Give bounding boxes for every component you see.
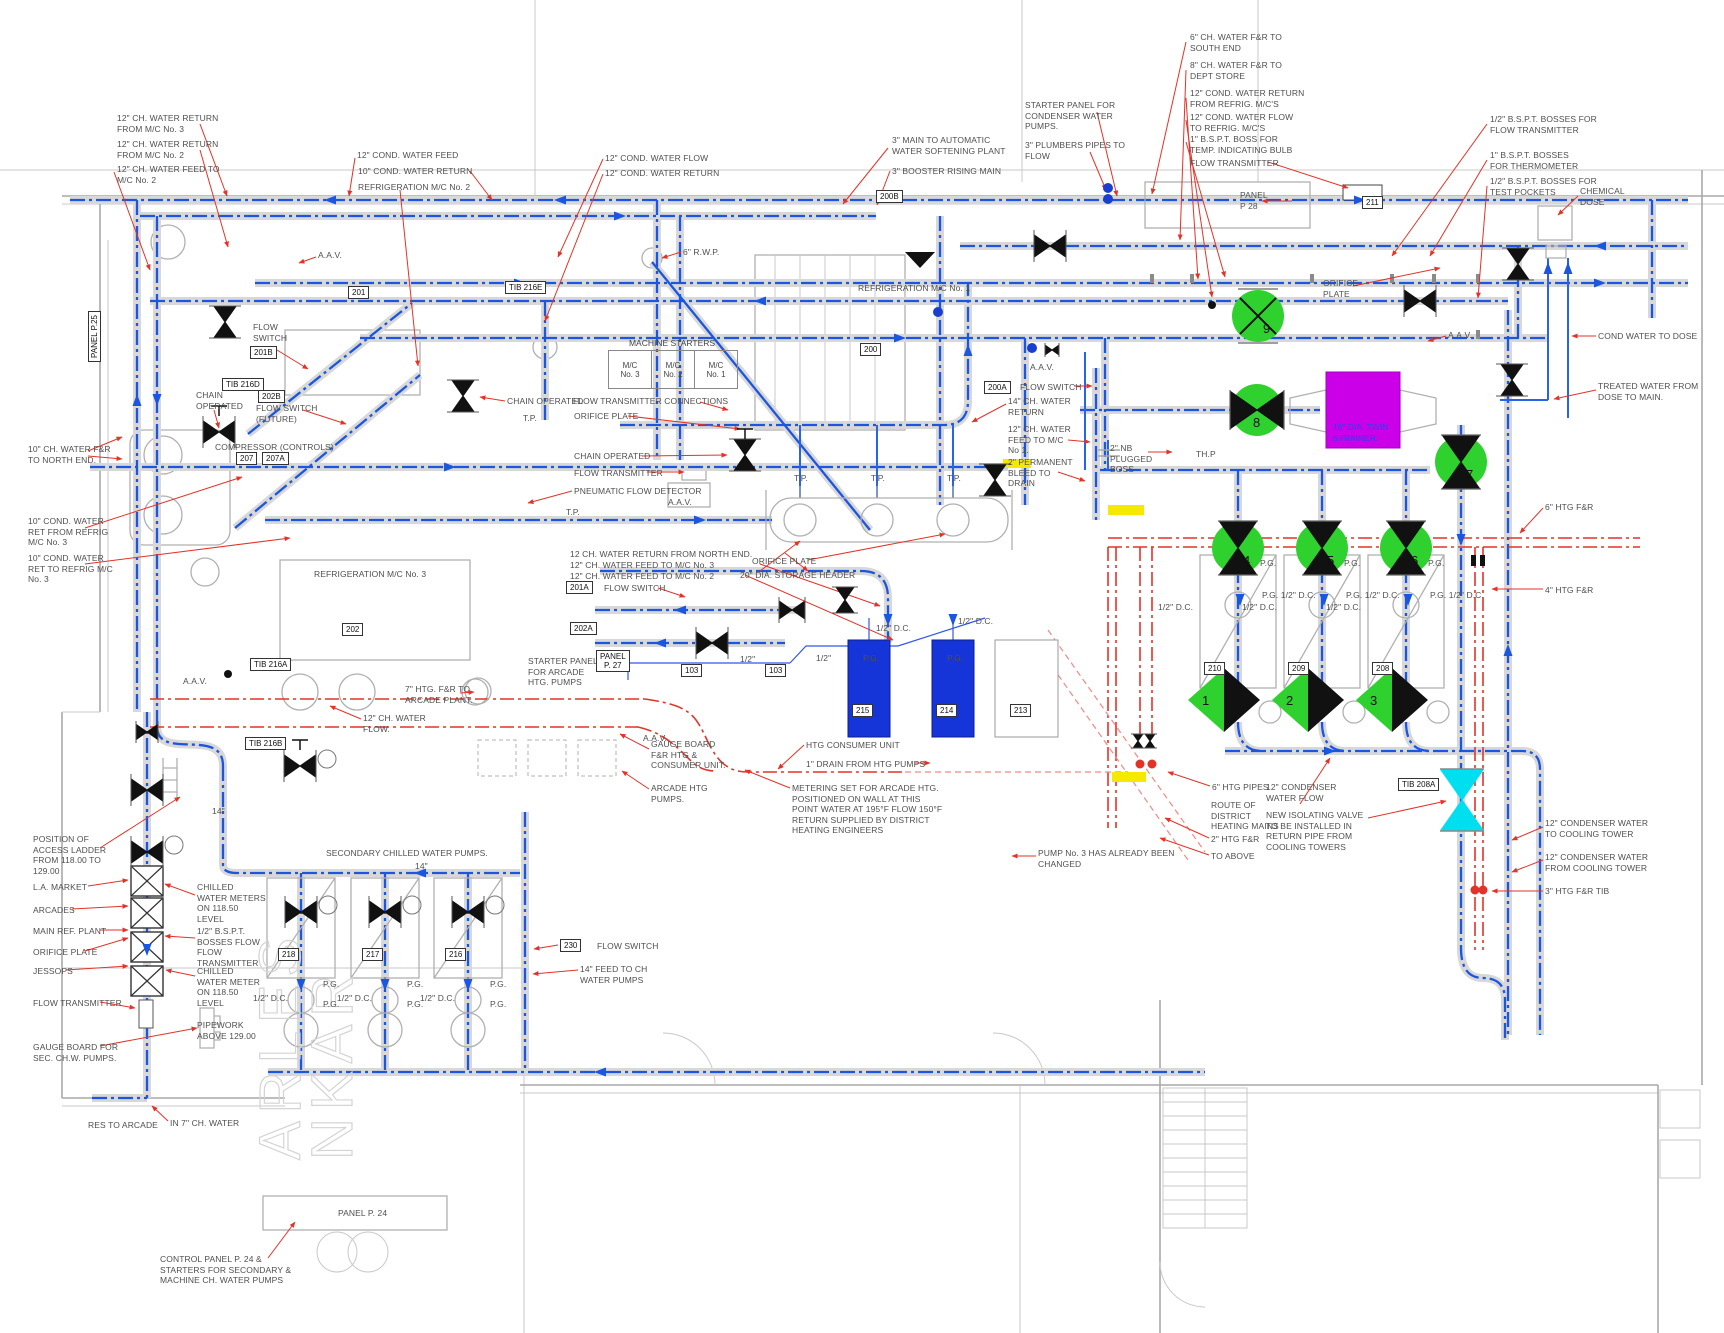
leader-north-end2 bbox=[88, 456, 122, 459]
tank-213 bbox=[995, 640, 1058, 737]
valve-black-12 bbox=[131, 836, 183, 868]
svg-text:9: 9 bbox=[1263, 321, 1270, 336]
flow-transmitter-box bbox=[1343, 185, 1382, 200]
leader-flow-tx-tr bbox=[1268, 162, 1348, 188]
leader-cond-ret-m3b bbox=[85, 538, 290, 564]
leader-cond-flow12b bbox=[1300, 758, 1330, 804]
leader-chain-op-2 bbox=[480, 397, 505, 401]
strainer-label-line1: 16" DIA. TWIN bbox=[1333, 422, 1388, 432]
district-heating-flanges bbox=[1471, 555, 1485, 566]
new-isolating-valve-cyan bbox=[1440, 769, 1484, 831]
machine-starters-table: M/C No. 3 M/C No. 2 M/C No. 1 bbox=[608, 350, 738, 389]
valve-black-6 bbox=[1034, 230, 1066, 262]
leader-chw-meters bbox=[165, 884, 195, 895]
valve-black-18 bbox=[1131, 734, 1145, 748]
marker-dot bbox=[1208, 301, 1216, 309]
leader-htg-consumer bbox=[778, 745, 804, 769]
leader-orifice-hdr bbox=[808, 534, 945, 560]
valve-black-21 bbox=[779, 597, 805, 623]
valve-black-19 bbox=[1143, 734, 1157, 748]
leader-treated bbox=[1554, 390, 1596, 399]
leader-flow-sw-201b bbox=[277, 350, 308, 369]
stairs bbox=[1163, 1088, 1247, 1228]
leader-cond-feed bbox=[349, 158, 355, 196]
leader-gauge-board bbox=[620, 734, 649, 749]
machine-starter-cell: M/C No. 3 bbox=[609, 351, 652, 388]
leader-ladder bbox=[100, 797, 180, 848]
valve-black-13 bbox=[284, 740, 336, 782]
marker-dot bbox=[1148, 760, 1157, 769]
leader-htg-2 bbox=[1165, 818, 1209, 838]
leader-flow-sw-fut bbox=[303, 410, 346, 424]
panel-p28-outline bbox=[1145, 182, 1310, 228]
plant-schematic-drawing: 16" DIA. TWIN STRAINER. AR bbox=[0, 0, 1724, 1333]
leader-control-p24 bbox=[268, 1222, 295, 1258]
marker-dot bbox=[1103, 194, 1113, 204]
valve-black-7 bbox=[1502, 248, 1534, 280]
marker-dot bbox=[933, 307, 943, 317]
leader-cond-ret-m3a bbox=[85, 477, 242, 528]
marker-dot bbox=[224, 670, 232, 678]
leader-cond-flow-refrig bbox=[1186, 120, 1212, 297]
strainer-label-line2: STRAINER. bbox=[1333, 433, 1378, 443]
leader-new-isolating bbox=[1368, 801, 1446, 818]
marker-dot bbox=[1027, 343, 1037, 353]
leader-aav-2 bbox=[299, 257, 316, 263]
leader-arcades bbox=[72, 906, 128, 909]
schematic-canvas: 16" DIA. TWIN STRAINER. AR bbox=[0, 0, 1724, 1333]
leader-in7 bbox=[152, 1106, 168, 1121]
leader-la-market bbox=[88, 880, 128, 886]
leader-chw-ret14 bbox=[972, 404, 1006, 422]
marker-dot bbox=[1136, 760, 1145, 769]
leader-dept-store bbox=[1180, 70, 1186, 240]
flow-arrow bbox=[949, 614, 958, 626]
leader-orifice-bl bbox=[85, 938, 128, 951]
storage-header bbox=[766, 486, 1012, 550]
flow-arrow bbox=[1564, 262, 1573, 274]
valve-green-5: 5 bbox=[1296, 521, 1348, 575]
valve-green-8: 8 bbox=[1230, 384, 1284, 436]
highlight-yellow-2 bbox=[1112, 772, 1146, 782]
valve-black-0 bbox=[209, 306, 241, 338]
leader-south-end bbox=[1152, 42, 1186, 194]
valve-black-15 bbox=[369, 896, 421, 928]
leader-cond-flow12 bbox=[558, 159, 603, 257]
leader-bspt-bulb bbox=[1186, 142, 1225, 277]
leader-plumbers bbox=[1090, 152, 1106, 190]
valve-green-6: 6 bbox=[1380, 521, 1432, 575]
tank-214 bbox=[932, 640, 974, 737]
valve-green-7: 7 bbox=[1435, 435, 1487, 489]
leader-feed-m1 bbox=[1068, 440, 1090, 442]
leader-flow-tx-bl bbox=[100, 1002, 135, 1008]
leader-bosses-flow bbox=[165, 936, 195, 938]
leader-arcade-pumps bbox=[622, 771, 649, 789]
valve-green-4: 4 bbox=[1212, 521, 1264, 575]
flow-direction-triangle bbox=[905, 252, 935, 268]
marker-dot bbox=[1479, 886, 1488, 895]
leader-bspt-thermo bbox=[1430, 160, 1487, 256]
valve-green-3: 3 bbox=[1356, 668, 1428, 732]
leader-feed14 bbox=[533, 970, 578, 974]
machine-starter-cell: M/C No. 2 bbox=[652, 351, 695, 388]
panel-p24-outline bbox=[263, 1196, 447, 1230]
svg-text:2: 2 bbox=[1286, 693, 1293, 708]
leader-north-end bbox=[88, 437, 122, 451]
leader-flow-sw-201a bbox=[658, 588, 685, 597]
svg-text:7: 7 bbox=[1466, 467, 1473, 482]
leader-pneum bbox=[528, 491, 572, 503]
svg-text:6: 6 bbox=[1411, 553, 1418, 568]
valve-black-2 bbox=[447, 380, 479, 412]
svg-text:8: 8 bbox=[1253, 415, 1260, 430]
svg-text:4: 4 bbox=[1243, 553, 1250, 568]
leader-htg-pipes6 bbox=[1168, 772, 1210, 786]
leader-bleed bbox=[1058, 472, 1085, 481]
marker-dot bbox=[1103, 183, 1113, 193]
watermark-word-2: NKAR bbox=[300, 967, 365, 1160]
leader-feed-mc2 bbox=[114, 172, 150, 270]
highlight-yellow-1 bbox=[1108, 505, 1144, 515]
leader-chw-meter bbox=[166, 970, 195, 976]
svg-text:5: 5 bbox=[1327, 553, 1334, 568]
chemical-dose-unit bbox=[1538, 206, 1572, 258]
valve-black-4 bbox=[696, 627, 728, 659]
floor-plan-watermark: ARLES NKAR bbox=[248, 930, 365, 1160]
valve-black-9 bbox=[1404, 285, 1436, 317]
leader-flow-sw-230 bbox=[534, 945, 558, 949]
valve-green-1: 1 bbox=[1188, 668, 1260, 732]
flow-arrow bbox=[1544, 262, 1553, 274]
machine-starters-title: MACHINE STARTERS bbox=[608, 338, 736, 348]
tank-215 bbox=[848, 640, 890, 737]
leader-chw-flow bbox=[330, 706, 361, 719]
valve-black-14 bbox=[285, 896, 337, 928]
svg-text:1: 1 bbox=[1202, 693, 1209, 708]
arcade-flange-circle bbox=[465, 678, 491, 704]
svg-text:3: 3 bbox=[1370, 693, 1377, 708]
valve-black-16 bbox=[452, 896, 504, 928]
leader-flow-tx-conn bbox=[700, 402, 728, 410]
marker-dot bbox=[1471, 886, 1480, 895]
leader-htg6 bbox=[1520, 508, 1543, 533]
valve-green-2: 2 bbox=[1272, 668, 1344, 732]
machine-starter-cell: M/C No. 1 bbox=[695, 351, 737, 388]
valve-black-17 bbox=[1045, 343, 1059, 357]
machinery-outlines bbox=[130, 225, 905, 1272]
leader-ret-mc3 bbox=[200, 124, 227, 196]
valve-black-8 bbox=[1496, 364, 1528, 396]
leader-bspt-flowtx bbox=[1392, 124, 1487, 256]
